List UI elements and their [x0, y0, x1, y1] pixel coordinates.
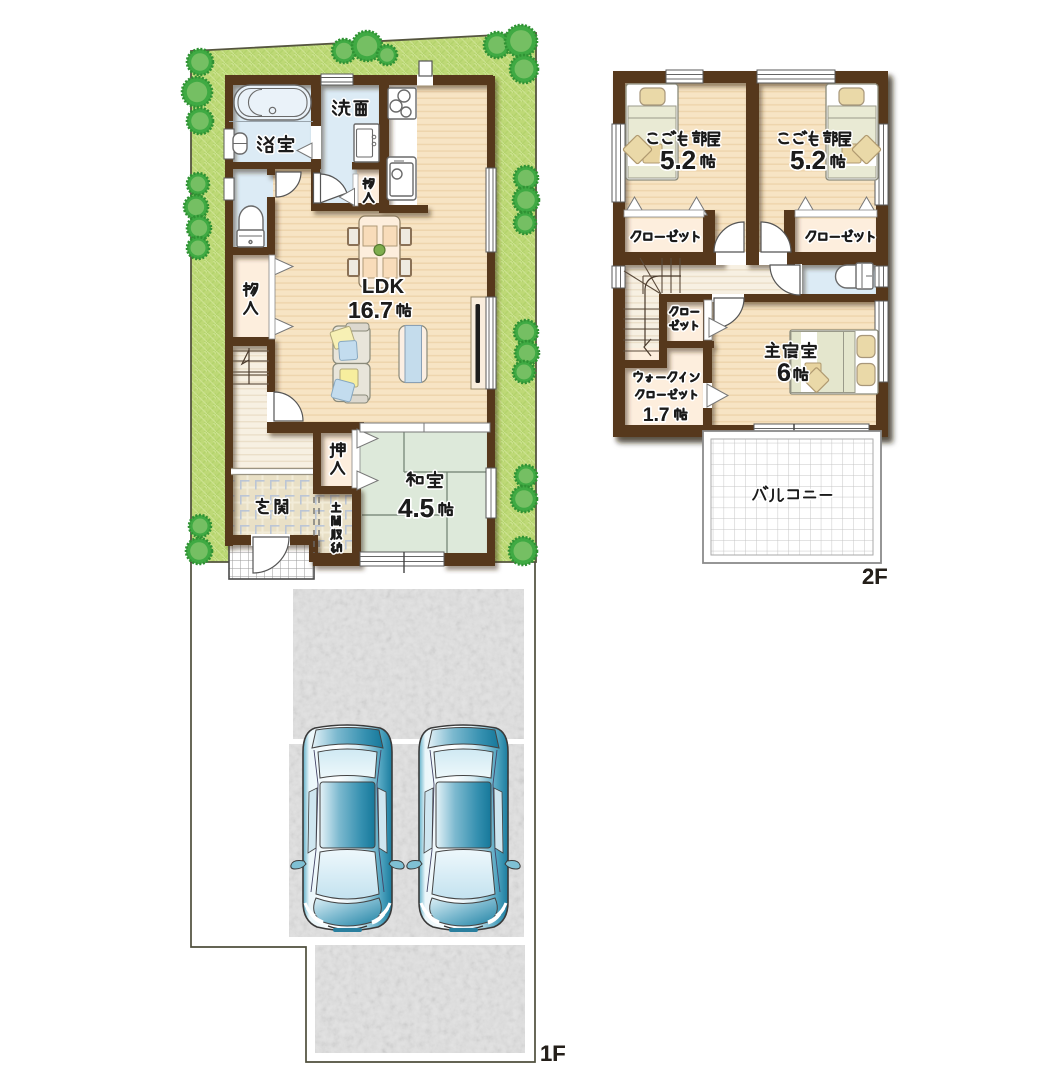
svg-text:5.2: 5.2	[660, 145, 696, 175]
svg-text:2F: 2F	[862, 564, 888, 589]
svg-text:4.5: 4.5	[398, 493, 434, 523]
svg-text:1.7: 1.7	[643, 405, 669, 426]
svg-text:1F: 1F	[540, 1041, 566, 1066]
svg-text:16.7: 16.7	[348, 297, 393, 323]
svg-text:LDK: LDK	[362, 276, 405, 298]
svg-text:6: 6	[777, 359, 791, 387]
svg-text:5.2: 5.2	[790, 145, 826, 175]
